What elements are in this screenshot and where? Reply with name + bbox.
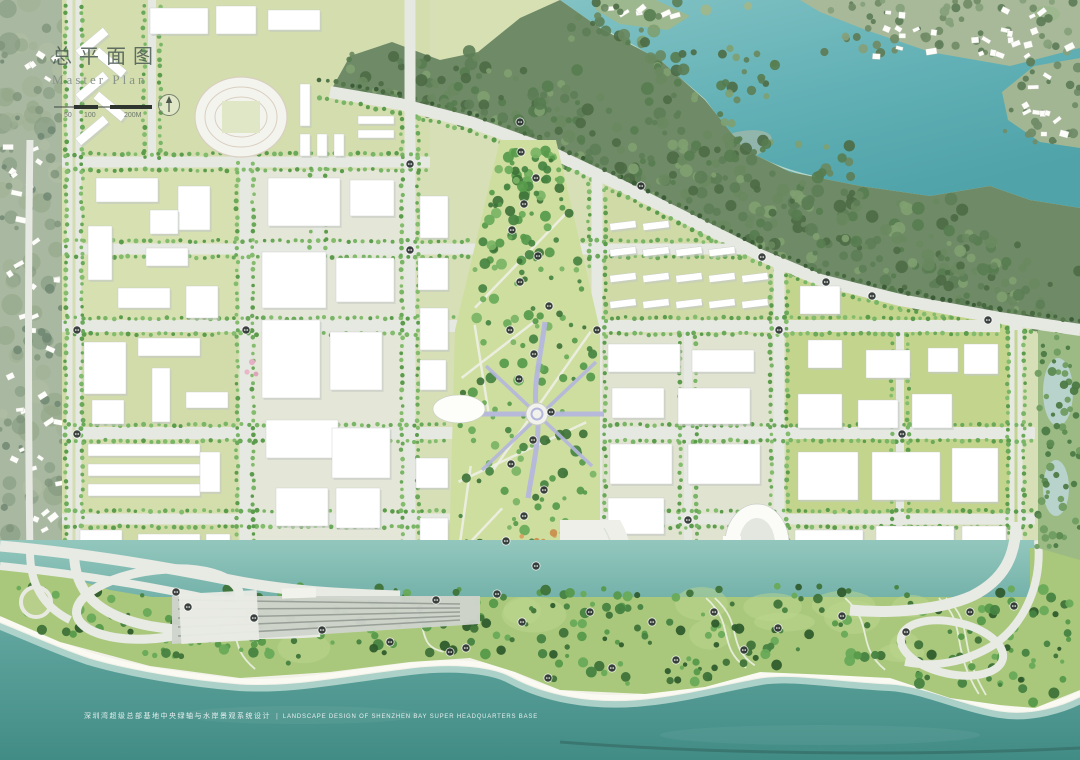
master-plan-map — [0, 0, 1080, 760]
master-plan-canvas: 总平面图 Master Plan 50 100 200M 深圳湾超级总部基地中央… — [0, 0, 1080, 760]
